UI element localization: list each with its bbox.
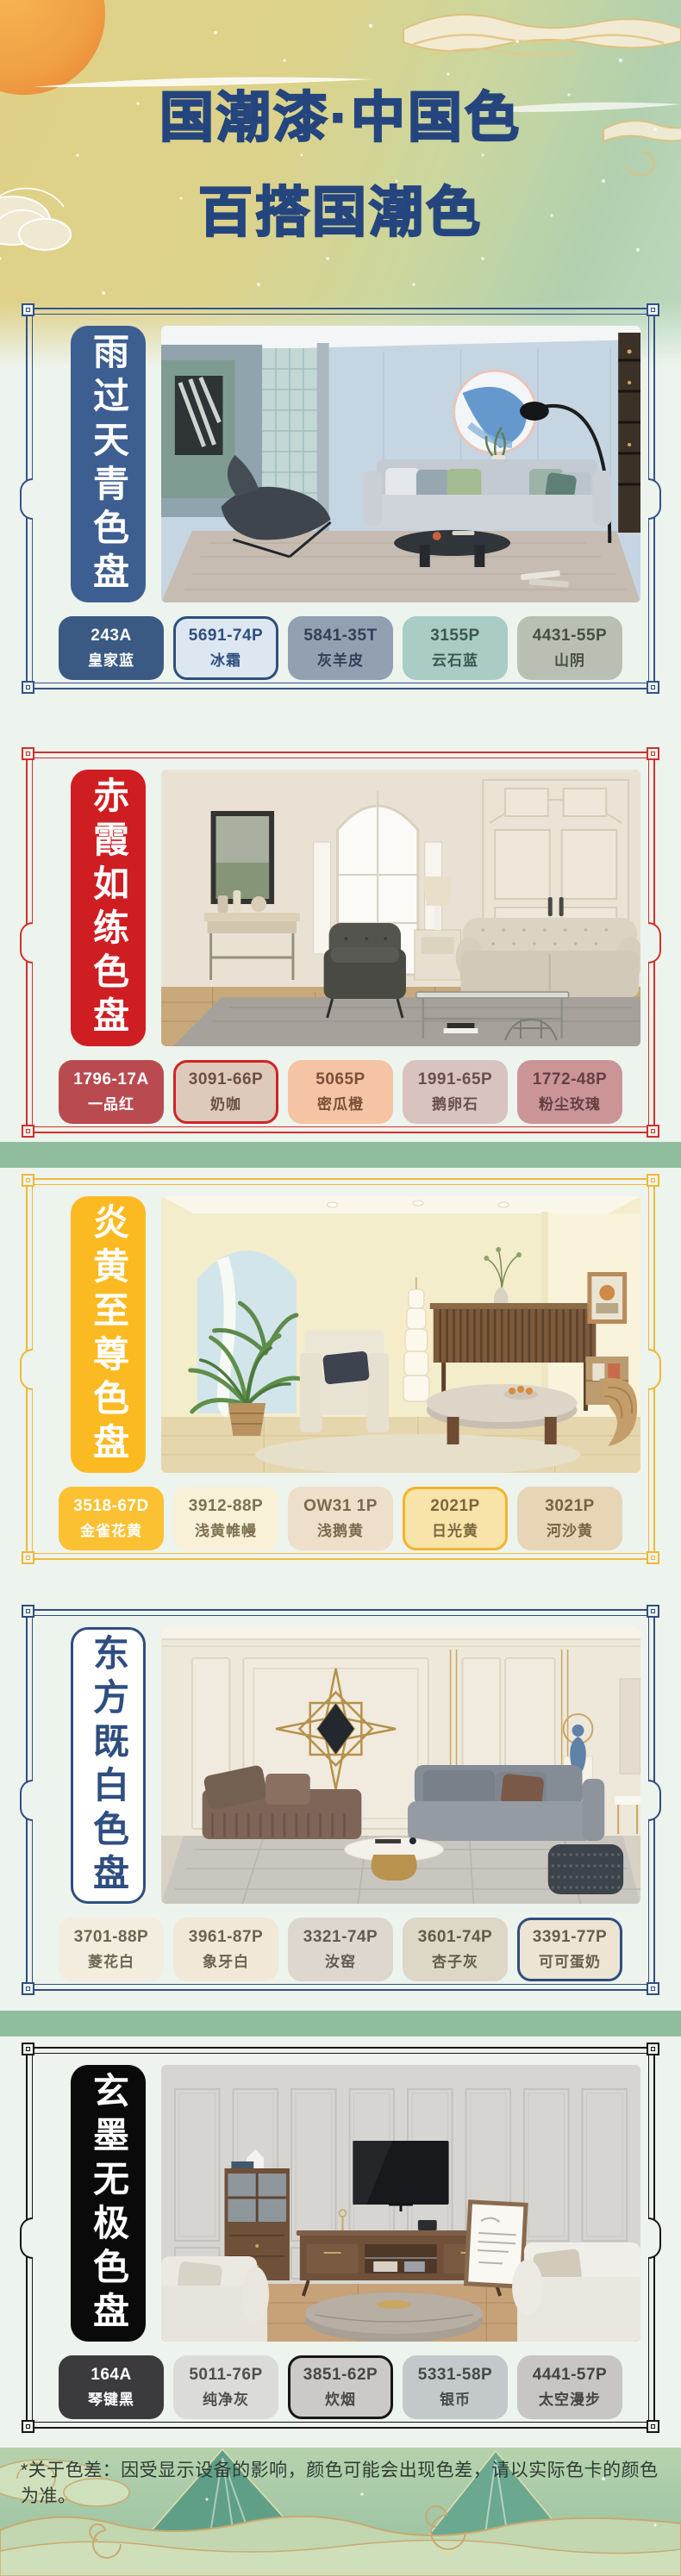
color-swatch: 3091-66P 奶咖 [173, 1060, 278, 1124]
swatch-code: 1796-17A [73, 1070, 148, 1089]
color-swatch: 3391-77P 可可蛋奶 [517, 1918, 622, 1981]
color-swatch: 1796-17A 一品红 [59, 1060, 164, 1124]
color-swatch: 5065P 密瓜橙 [288, 1060, 393, 1124]
color-swatch: 5841-35T 灰羊皮 [288, 616, 393, 680]
frame-corner-ornament [22, 681, 34, 694]
swatch-code: 3701-88P [74, 1928, 148, 1947]
palette-section-dawn-white: 东方既白色盘 [26, 1609, 655, 1991]
color-swatch: 3021P 河沙黄 [517, 1487, 622, 1550]
color-swatch: 164A 琴键黑 [59, 2355, 164, 2419]
swatch-code: 243A [91, 627, 131, 646]
room-photo-white-livingroom [161, 1627, 640, 1904]
gold-cloud-icon [403, 15, 681, 55]
frame-side-ornament [648, 922, 661, 964]
palette-section-rain-sky-blue: 雨过天青色盘 [26, 308, 655, 689]
speck-dots [0, 24, 657, 295]
swatch-code: 3518-67D [73, 1497, 148, 1516]
color-swatch: 3321-74P 汝窑 [288, 1918, 393, 1981]
frame-corner-ornament [647, 303, 659, 316]
room-photo-blue-livingroom [161, 326, 640, 602]
frame-side-ornament [20, 1349, 33, 1390]
swatch-code: 5691-74P [189, 627, 263, 646]
page-title-line1: 国潮漆·中国色 [0, 74, 681, 153]
frame-corner-ornament [22, 1605, 34, 1618]
frame-corner-ornament [647, 1551, 659, 1564]
swatch-name: 河沙黄 [547, 1519, 593, 1540]
frame-corner-ornament [647, 1605, 659, 1618]
swatch-name: 银币 [440, 2387, 471, 2409]
divider-band [0, 2011, 681, 2036]
swatch-row: 164A 琴键黑 5011-76P 纯净灰 3851-62P 炊烟 5331-5… [59, 2355, 622, 2419]
frame-side-ornament [20, 1780, 33, 1821]
palette-section-imperial-yellow: 炎黄至尊色盘 [26, 1178, 655, 1560]
swatch-name: 鹅卵石 [432, 1092, 478, 1113]
room-photo-yellow-livingroom [161, 1196, 640, 1473]
color-disclaimer-note: *关于色差：因受显示设备的影响，颜色可能会出现色差，请以实际色卡的颜色为准。 [21, 2456, 669, 2508]
palette-name: 东方既白色盘 [91, 1634, 127, 1898]
swatch-row: 3518-67D 金雀花黄 3912-88P 浅黄帷幔 OW31 1P 浅鹅黄 … [59, 1487, 622, 1550]
swatch-row: 3701-88P 菱花白 3961-87P 象牙白 3321-74P 汝窑 36… [59, 1918, 622, 1981]
palette-section-red-glow: 赤霞如练色盘 [26, 752, 655, 1133]
color-swatch: 1991-65P 鹅卵石 [403, 1060, 508, 1124]
swatch-code: 1991-65P [418, 1070, 492, 1089]
swatch-code: 5011-76P [189, 2366, 262, 2385]
color-swatch: 4431-55P 山阴 [517, 616, 622, 680]
palette-name: 炎黄至尊色盘 [91, 1203, 127, 1467]
swatch-code: 3912-88P [189, 1497, 263, 1516]
palette-sections: 雨过天青色盘 [0, 308, 681, 2429]
palette-title-banner: 炎黄至尊色盘 [71, 1196, 146, 1473]
swatch-name: 浅黄帷幔 [195, 1519, 257, 1540]
frame-corner-ornament [647, 747, 659, 760]
color-swatch: 3851-62P 炊烟 [288, 2355, 393, 2419]
frame-side-ornament [20, 922, 33, 964]
color-swatch: 5691-74P 冰霜 [173, 616, 278, 680]
frame-corner-ornament [22, 1125, 34, 1138]
frame-corner-ornament [647, 1125, 659, 1138]
swatch-name: 汝窑 [325, 1949, 356, 1971]
frame-corner-ornament [647, 1982, 659, 1995]
swatch-code: 5841-35T [303, 627, 377, 646]
frame-corner-ornament [22, 747, 34, 760]
color-swatch: 3601-74P 杏子灰 [403, 1918, 508, 1981]
swatch-code: 3961-87P [189, 1928, 263, 1947]
swatch-name: 浅鹅黄 [317, 1519, 364, 1540]
swatch-code: 164A [91, 2366, 131, 2385]
swatch-code: 5331-58P [418, 2366, 492, 2385]
swatch-code: 3601-74P [418, 1928, 492, 1947]
swatch-code: 5065P [316, 1070, 365, 1089]
swatch-code: 3851-62P [303, 2366, 378, 2385]
frame-corner-ornament [22, 1174, 34, 1187]
color-swatch: OW31 1P 浅鹅黄 [288, 1487, 393, 1550]
swatch-name: 日光黄 [432, 1519, 478, 1540]
frame-side-ornament [648, 2217, 661, 2259]
divider-band [0, 1142, 681, 1168]
swatch-name: 云石蓝 [432, 648, 478, 670]
frame-side-ornament [20, 2217, 33, 2259]
swatch-code: 2021P [430, 1497, 479, 1516]
swatch-code: OW31 1P [303, 1497, 378, 1516]
frame-corner-ornament [22, 2043, 34, 2055]
swatch-code: 1772-48P [533, 1070, 607, 1089]
frame-side-ornament [648, 1349, 661, 1390]
swatch-name: 山阴 [554, 648, 585, 670]
swatch-code: 3091-66P [189, 1070, 263, 1089]
frame-corner-ornament [22, 303, 34, 316]
swatch-row: 243A 皇家蓝 5691-74P 冰霜 5841-35T 灰羊皮 3155P … [59, 616, 622, 680]
swatch-name: 可可蛋奶 [539, 1949, 601, 1971]
palette-name: 玄墨无极色盘 [91, 2072, 127, 2336]
palette-title-banner: 雨过天青色盘 [71, 326, 146, 602]
swatch-name: 杏子灰 [432, 1949, 478, 1971]
frame-side-ornament [648, 1780, 661, 1821]
frame-corner-ornament [647, 2420, 659, 2433]
frame-corner-ornament [647, 1174, 659, 1187]
palette-name: 雨过天青色盘 [91, 333, 127, 596]
palette-title-banner: 东方既白色盘 [71, 1627, 146, 1904]
swatch-name: 粉尘玫瑰 [539, 1092, 601, 1113]
swatch-name: 奶咖 [210, 1092, 241, 1113]
swatch-name: 灰羊皮 [317, 648, 364, 670]
color-swatch: 2021P 日光黄 [403, 1487, 508, 1550]
room-photo-cream-livingroom [161, 770, 640, 1046]
frame-side-ornament [20, 478, 33, 520]
color-swatch: 5331-58P 银币 [403, 2355, 508, 2419]
frame-corner-ornament [22, 1551, 34, 1564]
swatch-name: 琴键黑 [88, 2387, 134, 2409]
color-swatch: 4441-57P 太空漫步 [517, 2355, 622, 2419]
room-photo-gray-livingroom [161, 2065, 640, 2342]
swatch-code: 3391-77P [533, 1928, 607, 1947]
palette-title-banner: 玄墨无极色盘 [71, 2065, 146, 2342]
swatch-name: 象牙白 [203, 1949, 249, 1971]
frame-corner-ornament [647, 2043, 659, 2055]
swatch-name: 炊烟 [325, 2387, 356, 2409]
swatch-name: 金雀花黄 [80, 1519, 142, 1540]
frame-corner-ornament [22, 2420, 34, 2433]
swatch-name: 密瓜橙 [317, 1092, 364, 1113]
swatch-code: 3321-74P [303, 1928, 378, 1947]
swatch-code: 3155P [430, 627, 479, 646]
color-swatch: 3912-88P 浅黄帷幔 [173, 1487, 278, 1550]
page-title-line2: 百搭国潮色 [0, 169, 681, 247]
palette-title-banner: 赤霞如练色盘 [71, 770, 146, 1046]
swatch-code: 4431-55P [533, 627, 607, 646]
color-swatch: 243A 皇家蓝 [59, 616, 164, 680]
swatch-name: 皇家蓝 [88, 648, 134, 670]
color-swatch: 3961-87P 象牙白 [173, 1918, 278, 1981]
frame-corner-ornament [22, 1982, 34, 1995]
swatch-row: 1796-17A 一品红 3091-66P 奶咖 5065P 密瓜橙 1991-… [59, 1060, 622, 1124]
frame-side-ornament [648, 478, 661, 520]
swatch-code: 4441-57P [533, 2366, 607, 2385]
palette-name: 赤霞如练色盘 [91, 777, 127, 1040]
color-swatch: 1772-48P 粉尘玫瑰 [517, 1060, 622, 1124]
color-swatch: 3155P 云石蓝 [403, 616, 508, 680]
swatch-name: 菱花白 [88, 1949, 134, 1971]
color-swatch: 3518-67D 金雀花黄 [59, 1487, 164, 1550]
frame-corner-ornament [647, 681, 659, 694]
swatch-name: 纯净灰 [203, 2387, 249, 2409]
swatch-code: 3021P [545, 1497, 594, 1516]
poster-footer: *关于色差：因受显示设备的影响，颜色可能会出现色差，请以实际色卡的颜色为准。 [0, 2448, 681, 2576]
color-swatch: 5011-76P 纯净灰 [173, 2355, 278, 2419]
swatch-name: 太空漫步 [539, 2387, 601, 2409]
palette-section-ink-black: 玄墨无极色盘 [26, 2047, 655, 2429]
swatch-name: 冰霜 [210, 648, 241, 670]
color-swatch: 3701-88P 菱花白 [59, 1918, 164, 1981]
swatch-name: 一品红 [88, 1092, 134, 1113]
